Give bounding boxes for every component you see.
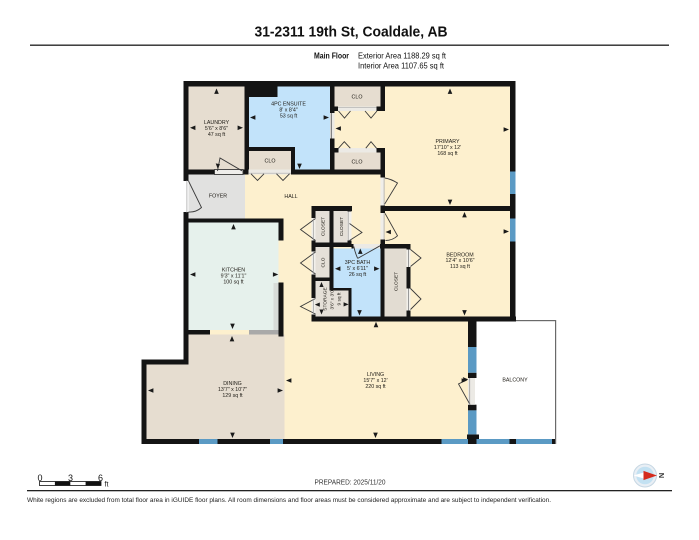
svg-text:100 sq ft: 100 sq ft: [223, 280, 244, 286]
svg-text:53 sq ft: 53 sq ft: [280, 114, 298, 120]
svg-text:31-2311 19th St, Coaldale, AB: 31-2311 19th St, Coaldale, AB: [255, 23, 448, 40]
svg-text:HALL: HALL: [284, 194, 297, 200]
svg-text:STORAGE: STORAGE: [322, 287, 328, 310]
svg-text:113 sq ft: 113 sq ft: [450, 264, 470, 270]
svg-text:CLO: CLO: [320, 257, 326, 267]
svg-text:26 sq ft: 26 sq ft: [349, 272, 367, 278]
svg-text:ft: ft: [105, 482, 109, 489]
svg-text:CLOSET: CLOSET: [321, 217, 327, 236]
svg-text:47 sq ft: 47 sq ft: [208, 132, 226, 138]
svg-text:9 sq ft: 9 sq ft: [336, 292, 342, 306]
svg-text:PREPARED: 2025/11/20: PREPARED: 2025/11/20: [315, 477, 386, 486]
svg-text:CLOSET: CLOSET: [339, 217, 345, 236]
svg-text:CLOSET: CLOSET: [393, 272, 399, 291]
svg-text:N: N: [657, 473, 666, 478]
svg-text:168 sq ft: 168 sq ft: [437, 151, 458, 157]
svg-text:Interior Area 1107.65 sq ft: Interior Area 1107.65 sq ft: [358, 61, 445, 71]
svg-text:CLO: CLO: [352, 95, 363, 101]
svg-text:BALCONY: BALCONY: [502, 378, 528, 384]
svg-text:129 sq ft: 129 sq ft: [222, 393, 243, 399]
svg-text:CLO: CLO: [265, 159, 276, 165]
svg-text:CLO: CLO: [352, 160, 363, 166]
svg-text:Exterior Area 1188.29 sq ft: Exterior Area 1188.29 sq ft: [358, 51, 447, 61]
svg-text:3'6" x 3'0": 3'6" x 3'0": [329, 288, 335, 309]
svg-text:FOYER: FOYER: [209, 194, 227, 200]
svg-text:White regions are excluded fro: White regions are excluded from total fl…: [27, 497, 551, 504]
svg-text:Main Floor: Main Floor: [314, 51, 350, 61]
svg-text:220 sq ft: 220 sq ft: [365, 384, 386, 390]
